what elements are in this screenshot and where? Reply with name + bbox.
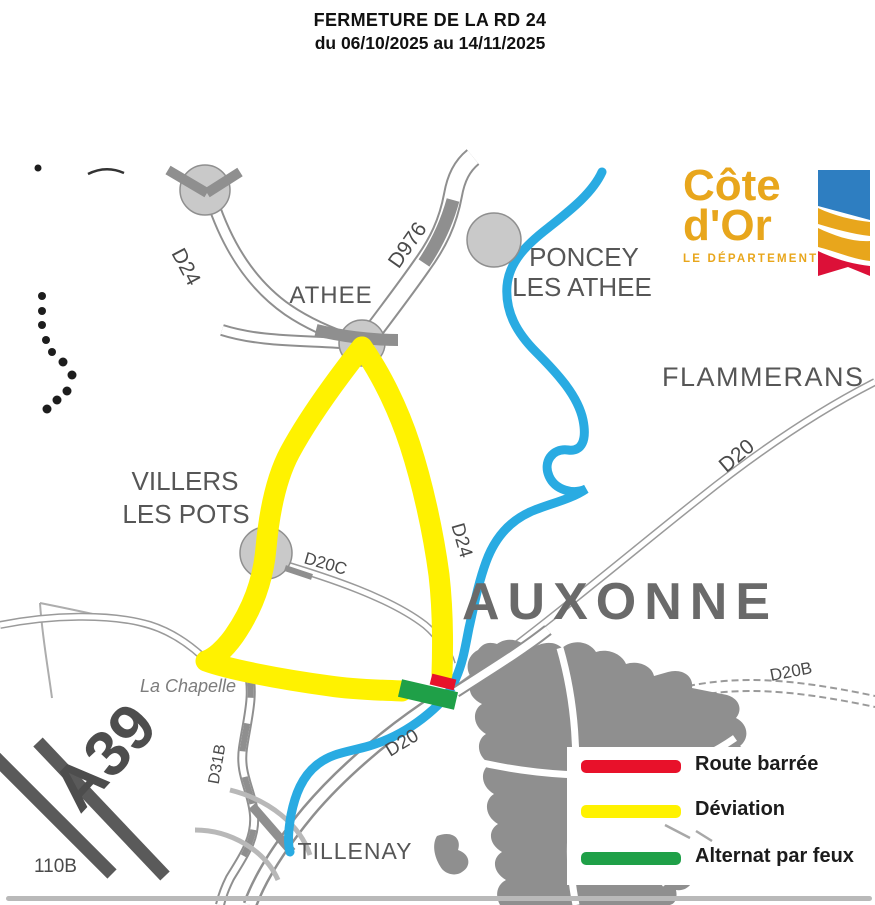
label-villers-line1: VILLERS	[132, 466, 239, 496]
legend-item-deviation: Déviation	[581, 804, 681, 818]
label-d24-north: D24	[167, 245, 206, 290]
alternat-section	[400, 688, 456, 701]
poncey-circle	[467, 213, 521, 267]
label-poncey-line1: PONCEY	[529, 242, 639, 272]
label-la-chapelle: La Chapelle	[140, 676, 236, 696]
road-closure-notice: FERMETURE DE LA RD 24 du 06/10/2025 au 1…	[0, 0, 875, 905]
label-athee: ATHEE	[289, 282, 372, 309]
deviation-swatch	[581, 805, 681, 818]
alternat-swatch	[581, 852, 681, 865]
road-d976	[363, 157, 473, 345]
label-poncey-line2: LES ATHEE	[512, 272, 652, 302]
road-d20-west	[0, 617, 203, 657]
map-line-fragments	[657, 819, 727, 849]
legend-item-alternat: Alternat par feux	[581, 851, 681, 865]
label-a39: A39	[38, 690, 171, 825]
label-d20-northeast: D20	[715, 435, 759, 477]
road-d20-northeast	[458, 382, 875, 688]
legend-label-deviation: Déviation	[695, 798, 785, 821]
label-villers-line2: LES POTS	[122, 499, 249, 529]
page-bottom-edge	[6, 896, 872, 901]
label-d20b: D20B	[768, 658, 813, 685]
label-tillenay: TILLENAY	[298, 838, 413, 864]
label-flammerans: FLAMMERANS	[662, 362, 865, 392]
legend: Route barrée Déviation Alternat par feux	[567, 747, 875, 885]
label-d31b: D31B	[206, 743, 230, 785]
route-barree-swatch	[581, 760, 681, 773]
legend-label-route-barree: Route barrée	[695, 753, 818, 776]
label-auxonne: AUXONNE	[462, 573, 778, 631]
label-d24-south: D24	[446, 521, 476, 561]
road-d31b	[220, 670, 254, 905]
dotted-boundary	[35, 165, 77, 414]
legend-item-route-barree: Route barrée	[581, 759, 681, 773]
boundary-tick	[88, 169, 124, 174]
road-d24-north	[212, 200, 356, 342]
road-d20c	[276, 562, 452, 664]
closure-section	[431, 679, 455, 685]
label-110b: 110B	[34, 856, 77, 877]
